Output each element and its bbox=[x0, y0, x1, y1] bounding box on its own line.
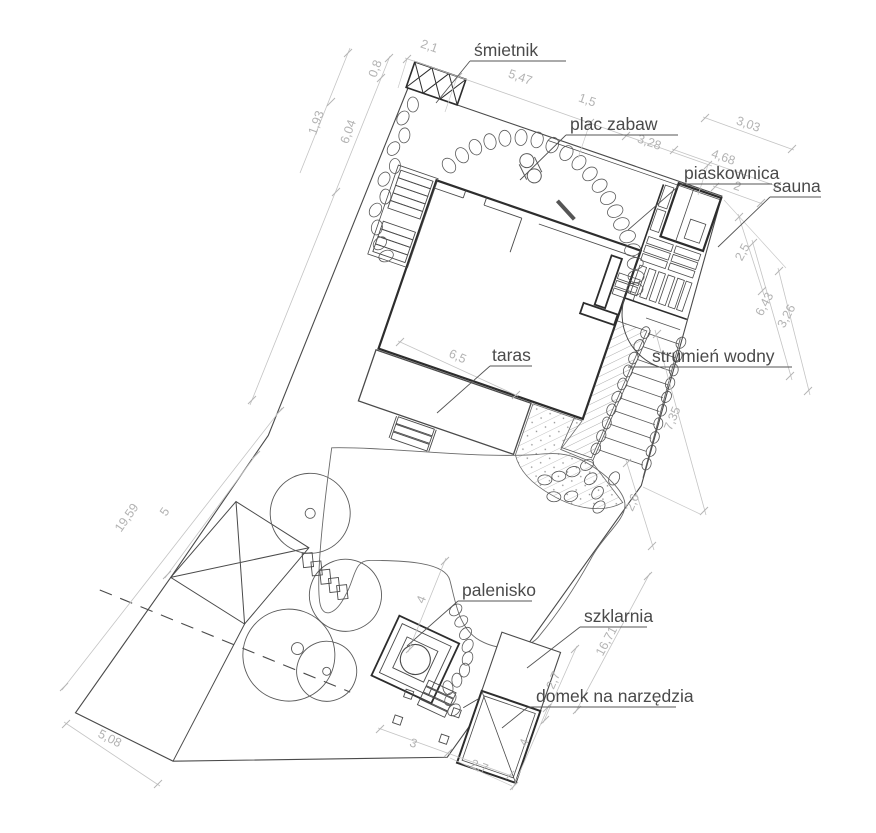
stone bbox=[389, 158, 401, 174]
plank bbox=[659, 275, 675, 306]
dim-19-59: 19,59 bbox=[112, 501, 141, 535]
label-palenisko: palenisko bbox=[462, 580, 536, 600]
tree bbox=[230, 597, 347, 714]
pad bbox=[320, 569, 331, 584]
label-szklarnia: szklarnia bbox=[584, 606, 653, 626]
dim-5: 5 bbox=[157, 505, 172, 519]
label-strumien-wodny: strumień wodny bbox=[652, 346, 775, 366]
stone bbox=[605, 203, 624, 220]
plank bbox=[641, 253, 668, 268]
dim-2-1: 2,1 bbox=[419, 37, 440, 56]
tree bbox=[259, 462, 361, 564]
plank bbox=[649, 272, 665, 303]
label-domek-na-narzedzia: domek na narzędzia bbox=[536, 686, 694, 706]
stone bbox=[457, 625, 474, 642]
stone bbox=[618, 229, 637, 245]
trash-enclosure bbox=[406, 62, 466, 105]
plank bbox=[644, 245, 671, 260]
stone bbox=[529, 131, 545, 150]
stone bbox=[467, 138, 484, 157]
dim-1-93: 1,93 bbox=[306, 109, 327, 137]
paved-area bbox=[506, 404, 643, 520]
dim-5-47: 5,47 bbox=[507, 67, 535, 88]
stone bbox=[482, 132, 497, 150]
dashed-line bbox=[95, 590, 355, 692]
property-boundary bbox=[71, 52, 739, 833]
label-plac-zabaw: plac zabaw bbox=[570, 114, 658, 134]
dim-3-03: 3,03 bbox=[735, 114, 763, 135]
plank bbox=[671, 254, 698, 269]
stone bbox=[452, 673, 462, 687]
play-tube bbox=[514, 152, 547, 185]
stone bbox=[367, 201, 385, 220]
label-taras: taras bbox=[492, 345, 531, 365]
stone bbox=[385, 139, 403, 158]
stone bbox=[376, 170, 393, 188]
sandbox-deck bbox=[624, 179, 727, 320]
sauna-bench bbox=[684, 219, 706, 243]
stone bbox=[544, 135, 561, 154]
dim-2-5: 2,5 bbox=[732, 241, 753, 263]
stone bbox=[439, 156, 458, 176]
driveway-strip bbox=[173, 617, 245, 769]
pergola bbox=[164, 489, 315, 635]
fire-pit-ring bbox=[395, 640, 435, 680]
stone bbox=[514, 129, 527, 146]
stepping-pads bbox=[292, 550, 359, 603]
site-plan-svg: 2,1 5,47 1,5 3,28 3,03 4,68 2 0,8 6,04 1… bbox=[0, 0, 876, 833]
dim-2-6: 2,6 bbox=[622, 492, 642, 514]
play-beam bbox=[554, 201, 579, 220]
step bbox=[388, 200, 423, 219]
dim-5-08: 5,08 bbox=[96, 727, 124, 751]
label-sauna: sauna bbox=[773, 176, 821, 196]
dim-4-firepit: 4 bbox=[414, 593, 430, 605]
label-piaskownica: piaskownica bbox=[684, 163, 780, 183]
dim-3: 3 bbox=[408, 735, 420, 751]
dim-7-35: 7,35 bbox=[661, 404, 683, 432]
dim-1-5: 1,5 bbox=[577, 91, 598, 110]
post bbox=[393, 715, 403, 725]
stone bbox=[407, 97, 418, 112]
dim-3-26: 3,26 bbox=[775, 302, 799, 330]
dim-16-71: 16,71 bbox=[593, 624, 620, 658]
stone bbox=[445, 702, 462, 719]
pad bbox=[302, 553, 313, 568]
site-plan-page: 2,1 5,47 1,5 3,28 3,03 4,68 2 0,8 6,04 1… bbox=[0, 0, 876, 833]
tree-center bbox=[290, 641, 305, 656]
stone bbox=[453, 145, 471, 165]
stone bbox=[498, 130, 511, 147]
tree bbox=[289, 633, 365, 709]
post bbox=[439, 734, 449, 744]
plank bbox=[668, 263, 695, 278]
tree-center bbox=[304, 507, 317, 520]
label-smietnik: śmietnik bbox=[474, 40, 538, 60]
fire-pit bbox=[369, 616, 476, 718]
stone bbox=[394, 109, 411, 128]
stone bbox=[398, 127, 411, 143]
